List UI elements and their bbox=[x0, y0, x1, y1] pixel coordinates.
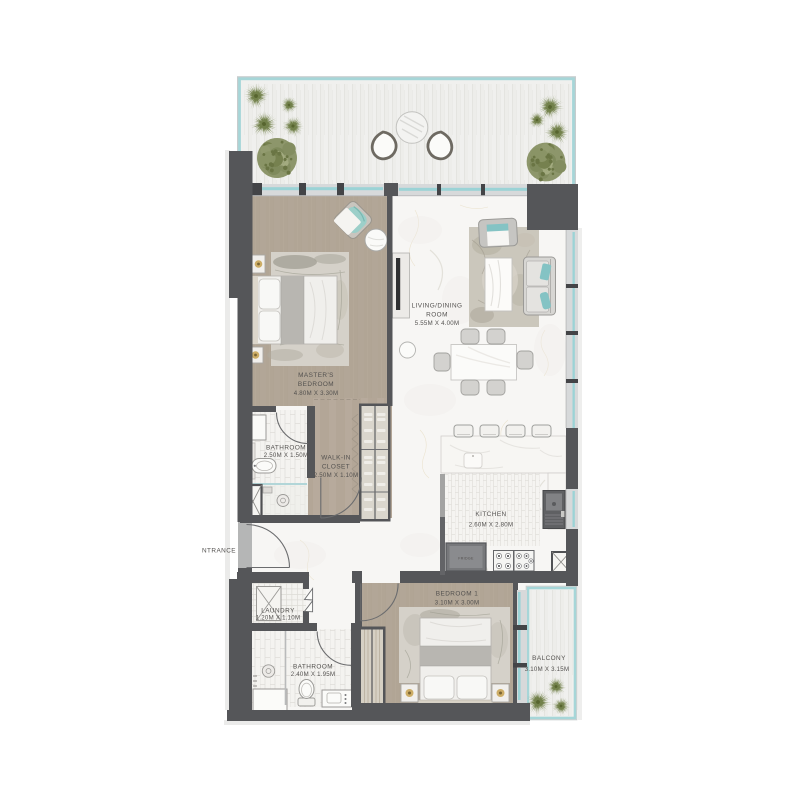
svg-text:ROOM: ROOM bbox=[426, 312, 448, 319]
svg-text:LIVING/DINING: LIVING/DINING bbox=[412, 303, 463, 310]
svg-text:3.10M X 3.15M: 3.10M X 3.15M bbox=[525, 666, 570, 673]
svg-text:3.10M X 3.00M: 3.10M X 3.00M bbox=[435, 600, 480, 607]
svg-text:2.50M X 1.10M: 2.50M X 1.10M bbox=[314, 472, 359, 479]
svg-text:BATHROOM: BATHROOM bbox=[266, 445, 306, 452]
svg-text:BATHROOM: BATHROOM bbox=[293, 664, 333, 671]
svg-text:2.60M X 2.80M: 2.60M X 2.80M bbox=[469, 522, 514, 529]
svg-text:BEDROOM 1: BEDROOM 1 bbox=[436, 591, 478, 598]
svg-text:CLOSET: CLOSET bbox=[322, 464, 350, 471]
svg-text:WALK-IN: WALK-IN bbox=[321, 455, 351, 462]
svg-text:BALCONY: BALCONY bbox=[532, 655, 566, 662]
svg-text:FRIDGE: FRIDGE bbox=[458, 557, 474, 561]
svg-text:NTRANCE: NTRANCE bbox=[202, 548, 236, 555]
svg-text:1.20M X 1.10M: 1.20M X 1.10M bbox=[256, 615, 301, 622]
svg-text:LAUNDRY: LAUNDRY bbox=[261, 608, 295, 615]
svg-text:2.40M X 1.95M: 2.40M X 1.95M bbox=[291, 671, 336, 678]
svg-text:4.80M X 3.30M: 4.80M X 3.30M bbox=[294, 390, 339, 397]
svg-text:5.55M X 4.00M: 5.55M X 4.00M bbox=[415, 320, 460, 327]
svg-text:MASTER'S: MASTER'S bbox=[298, 372, 334, 379]
svg-text:BEDROOM: BEDROOM bbox=[298, 381, 334, 388]
svg-text:KITCHEN: KITCHEN bbox=[475, 511, 506, 518]
svg-text:2.50M X 1.50M: 2.50M X 1.50M bbox=[264, 452, 309, 459]
